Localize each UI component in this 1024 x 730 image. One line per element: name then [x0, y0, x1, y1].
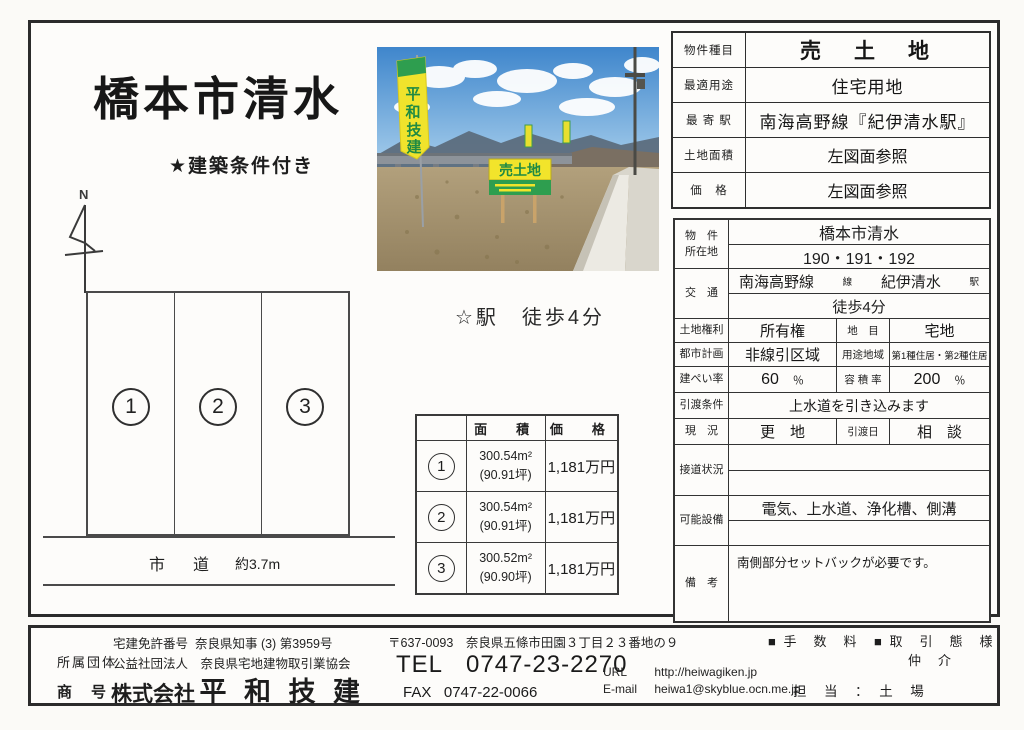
- email-value: heiwa1@skyblue.ocn.me.jp: [654, 682, 800, 696]
- detail-label-handover-condition: 引渡条件: [675, 393, 729, 418]
- summary-label-station: 最 寄 駅: [673, 103, 746, 137]
- area-m2: 300.52m²: [479, 549, 532, 568]
- plot-3: 3: [262, 293, 348, 534]
- road-contact-value-cell: [729, 445, 989, 495]
- road-width-label: 約3.7m: [235, 554, 280, 574]
- detail-table: 物 件 所在地 橋本市清水 190・191・192 交 通 南海高野線 線 紀伊…: [673, 218, 991, 623]
- access-line-row: 南海高野線 線 紀伊清水 駅: [729, 269, 989, 294]
- staff-in-charge: 担 当 ： 土 場: [793, 680, 926, 700]
- detail-row-remarks: 備 考 南側部分セットバックが必要です。: [675, 546, 989, 621]
- location-lot-numbers: 190・191・192: [729, 245, 989, 269]
- main-sheet: 橋本市清水 ★建築条件付き N 1 2 3 市 道 約3.7m: [28, 20, 1000, 617]
- banner-char-3: 技: [406, 121, 422, 139]
- current-state-value: 更 地: [729, 419, 836, 444]
- price-row-3: 3 300.52m² (90.90坪) 1,181万円: [417, 543, 617, 593]
- plot-diagram: 1 2 3: [86, 291, 350, 536]
- price-table: 面 積 価 格 1 300.54m² (90.91坪) 1,181万円 2 30…: [415, 414, 619, 595]
- tel-line: TEL 0747-23-2270: [396, 651, 628, 679]
- price-row-2-area: 300.54m² (90.91坪): [467, 492, 546, 542]
- coverage-unit: ％: [793, 372, 804, 388]
- detail-label-coverage: 建ぺい率: [675, 367, 729, 392]
- summary-row-use: 最適用途 住宅用地: [673, 68, 989, 103]
- email-label: E-mail: [603, 682, 651, 696]
- station-suffix: 駅: [969, 274, 979, 288]
- summary-row-station: 最 寄 駅 南海高野線『紀伊清水駅』: [673, 103, 989, 138]
- zoning-value: 第1種住居・第2種住居: [890, 343, 989, 366]
- summary-value-station: 南海高野線『紀伊清水駅』: [746, 103, 989, 137]
- detail-value-location: 橋本市清水 190・191・192: [729, 220, 989, 268]
- detail-label-land-category: 地 目: [836, 319, 890, 342]
- price-row-3-price: 1,181万円: [546, 543, 617, 593]
- area-tsubo: (90.90坪): [480, 568, 532, 587]
- company-name: 平 和 技 建: [199, 677, 365, 707]
- detail-label-access: 交 通: [675, 269, 729, 318]
- north-label: N: [79, 187, 88, 202]
- utilities-value: 電気、上水道、浄化槽、側溝: [729, 496, 989, 521]
- remarks-value: 南側部分セットバックが必要です。: [729, 546, 989, 621]
- price-header-price: 価 格: [546, 416, 617, 440]
- area-tsubo: (90.91坪): [480, 517, 532, 536]
- url-label: URL: [603, 665, 651, 679]
- detail-label-rights: 土地権利: [675, 319, 729, 342]
- fax-number: 0747-22-0066: [444, 684, 537, 701]
- road-upper-line: [43, 536, 395, 538]
- coverage-value: 60: [761, 371, 779, 389]
- detail-label-current-state: 現 況: [675, 419, 729, 444]
- rights-value: 所有権: [729, 319, 836, 342]
- road-contact-value: [729, 445, 989, 471]
- license-line: 宅建免許番号 奈良県知事 (3) 第3959号: [113, 633, 333, 652]
- floor-ratio-value-cell: 200 ％: [890, 367, 989, 392]
- price-table-header: 面 積 価 格: [417, 416, 617, 441]
- price-header-corner: [417, 416, 467, 440]
- detail-row-current-state: 現 況 更 地 引渡日 相 談: [675, 419, 989, 445]
- photo-pole-crossarm: [625, 73, 645, 77]
- postal-address: 〒637-0093 奈良県五條市田園３丁目２３番地の９: [388, 632, 678, 651]
- detail-row-rights: 土地権利 所有権 地 目 宅地: [675, 319, 989, 343]
- road-contact-empty: [729, 471, 989, 495]
- detail-label-zoning: 用途地域: [836, 343, 890, 366]
- transaction-type-label: ■ 取 引 態 様: [874, 631, 994, 650]
- price-row-2: 2 300.54m² (90.91坪) 1,181万円: [417, 492, 617, 543]
- detail-label-location: 物 件 所在地: [675, 220, 729, 268]
- price-row-1-price: 1,181万円: [546, 441, 617, 491]
- location-city: 橋本市清水: [729, 220, 989, 245]
- coverage-value-cell: 60 ％: [729, 367, 836, 392]
- fax-label: FAX: [403, 684, 431, 701]
- detail-label-remarks: 備 考: [675, 546, 729, 621]
- area-m2: 300.54m²: [479, 498, 532, 517]
- trade-name-label: 商 号: [57, 681, 108, 702]
- area-tsubo: (90.91坪): [480, 466, 532, 485]
- detail-row-location: 物 件 所在地 橋本市清水 190・191・192: [675, 220, 989, 269]
- detail-row-utilities: 可能設備 電気、上水道、浄化槽、側溝: [675, 496, 989, 546]
- summary-label-use: 最適用途: [673, 68, 746, 102]
- detail-label-road-contact: 接道状況: [675, 445, 729, 495]
- license-label: 宅建免許番号: [113, 637, 188, 651]
- price-row-2-price: 1,181万円: [546, 492, 617, 542]
- email-line: E-mail heiwa1@skyblue.ocn.me.jp: [603, 682, 801, 696]
- plot-2-number: 2: [199, 388, 237, 426]
- detail-row-planning: 都市計画 非線引区域 用途地域 第1種住居・第2種住居: [675, 343, 989, 367]
- plot-3-number: 3: [286, 388, 324, 426]
- page-title: 橋本市清水: [93, 63, 343, 129]
- price-row-1-no: 1: [417, 441, 467, 491]
- summary-row-type: 物件種目 売 土 地: [673, 33, 989, 68]
- detail-row-handover-condition: 引渡条件 上水道を引き込みます: [675, 393, 989, 419]
- price-row-1-area: 300.54m² (90.91坪): [467, 441, 546, 491]
- property-photo: 平 和 技 建 売土地: [377, 47, 659, 271]
- price-row-3-area: 300.52m² (90.90坪): [467, 543, 546, 593]
- tel-label: TEL: [396, 651, 443, 678]
- station-name: 紀伊清水: [881, 271, 941, 292]
- company-name-line: 株式会社 平 和 技 建: [111, 670, 365, 709]
- url-line: URL http://heiwagiken.jp: [603, 665, 757, 679]
- planning-value: 非線引区域: [729, 343, 836, 366]
- fee-label: ■ 手 数 料: [768, 631, 858, 650]
- label-line-2: 所在地: [685, 244, 718, 261]
- summary-table: 物件種目 売 土 地 最適用途 住宅用地 最 寄 駅 南海高野線『紀伊清水駅』 …: [671, 31, 991, 209]
- price-row-1-number: 1: [428, 453, 455, 480]
- detail-value-access: 南海高野線 線 紀伊清水 駅 徒歩4分: [729, 269, 989, 318]
- floor-ratio-value: 200: [914, 371, 941, 389]
- url-value: http://heiwagiken.jp: [654, 665, 757, 679]
- plot-1-number: 1: [112, 388, 150, 426]
- plot-1: 1: [88, 293, 175, 534]
- price-row-3-no: 3: [417, 543, 467, 593]
- detail-label-utilities: 可能設備: [675, 496, 729, 545]
- summary-value-use: 住宅用地: [746, 68, 989, 102]
- road-label: 市 道: [149, 551, 215, 575]
- org-label: 所属団体: [57, 652, 117, 671]
- banner-char-2: 和: [405, 104, 420, 121]
- photo-transformer: [637, 79, 645, 89]
- summary-row-area: 土地面積 左図面参照: [673, 138, 989, 173]
- summary-label-type: 物件種目: [673, 33, 746, 67]
- label-line-1: 物 件: [685, 228, 718, 245]
- rail-line-suffix: 線: [843, 274, 853, 288]
- handover-date-value: 相 談: [890, 419, 989, 444]
- fax-line: FAX 0747-22-0066: [403, 684, 537, 701]
- price-row-3-number: 3: [428, 555, 455, 582]
- company-prefix: 株式会社: [111, 683, 195, 706]
- area-m2: 300.54m²: [479, 447, 532, 466]
- summary-label-price: 価 格: [673, 173, 746, 207]
- price-header-area: 面 積: [467, 416, 546, 440]
- detail-row-coverage: 建ぺい率 60 ％ 容 積 率 200 ％: [675, 367, 989, 393]
- transaction-type-value: 仲 介: [908, 650, 953, 669]
- sale-sign-text: 売土地: [499, 162, 541, 178]
- license-number: 奈良県知事 (3) 第3959号: [195, 637, 333, 651]
- summary-row-price: 価 格 左図面参照: [673, 173, 989, 207]
- building-condition-note: ★建築条件付き: [169, 151, 314, 178]
- detail-row-access: 交 通 南海高野線 線 紀伊清水 駅 徒歩4分: [675, 269, 989, 319]
- walk-time: 徒歩4分: [729, 294, 989, 318]
- summary-value-price: 左図面参照: [746, 173, 989, 207]
- road-lower-line: [43, 584, 395, 586]
- plot-2: 2: [175, 293, 262, 534]
- handover-condition-value: 上水道を引き込みます: [729, 393, 989, 418]
- banner-char-1: 平: [405, 86, 420, 103]
- price-row-2-number: 2: [428, 504, 455, 531]
- footer-box: 宅建免許番号 奈良県知事 (3) 第3959号 所属団体 公益社団法人 奈良県宅…: [28, 625, 1000, 706]
- floor-ratio-unit: ％: [954, 372, 965, 388]
- rail-line-name: 南海高野線: [739, 271, 814, 292]
- utilities-value-cell: 電気、上水道、浄化槽、側溝: [729, 496, 989, 545]
- summary-label-area: 土地面積: [673, 138, 746, 172]
- banner-char-4: 建: [406, 138, 422, 156]
- price-row-2-no: 2: [417, 492, 467, 542]
- summary-value-type: 売 土 地: [746, 33, 989, 67]
- detail-row-road-contact: 接道状況: [675, 445, 989, 496]
- price-row-1: 1 300.54m² (90.91坪) 1,181万円: [417, 441, 617, 492]
- land-category-value: 宅地: [890, 319, 989, 342]
- station-note: ☆駅 徒歩4分: [455, 301, 605, 330]
- detail-label-floor-ratio: 容 積 率: [836, 367, 890, 392]
- detail-label-handover-date: 引渡日: [836, 419, 890, 444]
- utilities-empty: [729, 521, 989, 545]
- detail-label-planning: 都市計画: [675, 343, 729, 366]
- summary-value-area: 左図面参照: [746, 138, 989, 172]
